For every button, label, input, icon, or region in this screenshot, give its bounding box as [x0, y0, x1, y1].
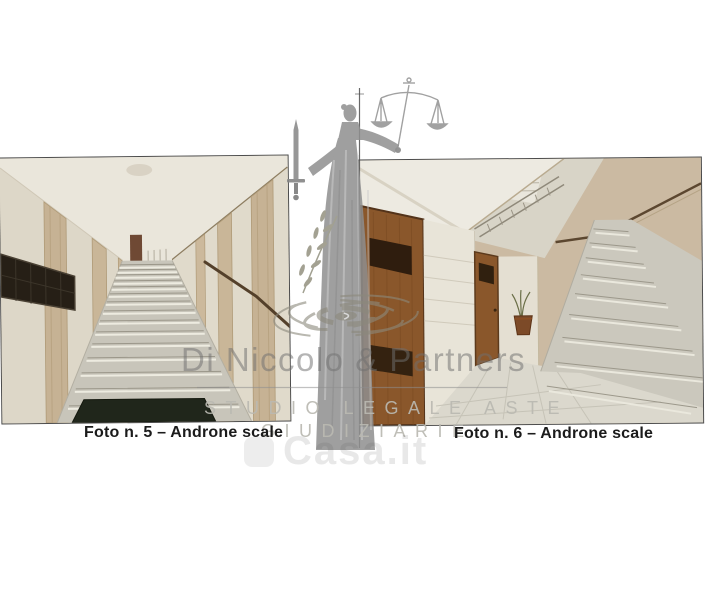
- sword-icon: [287, 119, 305, 200]
- casa-it-watermark: Casa.it: [244, 429, 428, 474]
- photo-5-androne-scale: [0, 155, 290, 423]
- scales-of-justice-icon: [372, 78, 447, 153]
- doormat: [72, 398, 216, 422]
- photo-5-scene: [0, 155, 290, 423]
- casa-it-label: Casa.it: [283, 429, 428, 474]
- studio-legale-watermark: STUDIO LEGALE ASTE: [204, 398, 569, 419]
- firm-name-watermark: Di Niccolo & Partners: [181, 341, 526, 379]
- wooden-door-large: [361, 206, 425, 426]
- photo-collage-page: Di Niccolo & Partners STUDIO LEGALE ASTE…: [0, 0, 716, 600]
- photo-6-androne-scale: [359, 158, 703, 426]
- casa-it-logo-icon: [244, 437, 274, 467]
- laurel-branch: [298, 210, 334, 288]
- caption-foto-6: Foto n. 6 – Androne scale: [454, 425, 653, 443]
- photo-6-scene: [359, 158, 703, 426]
